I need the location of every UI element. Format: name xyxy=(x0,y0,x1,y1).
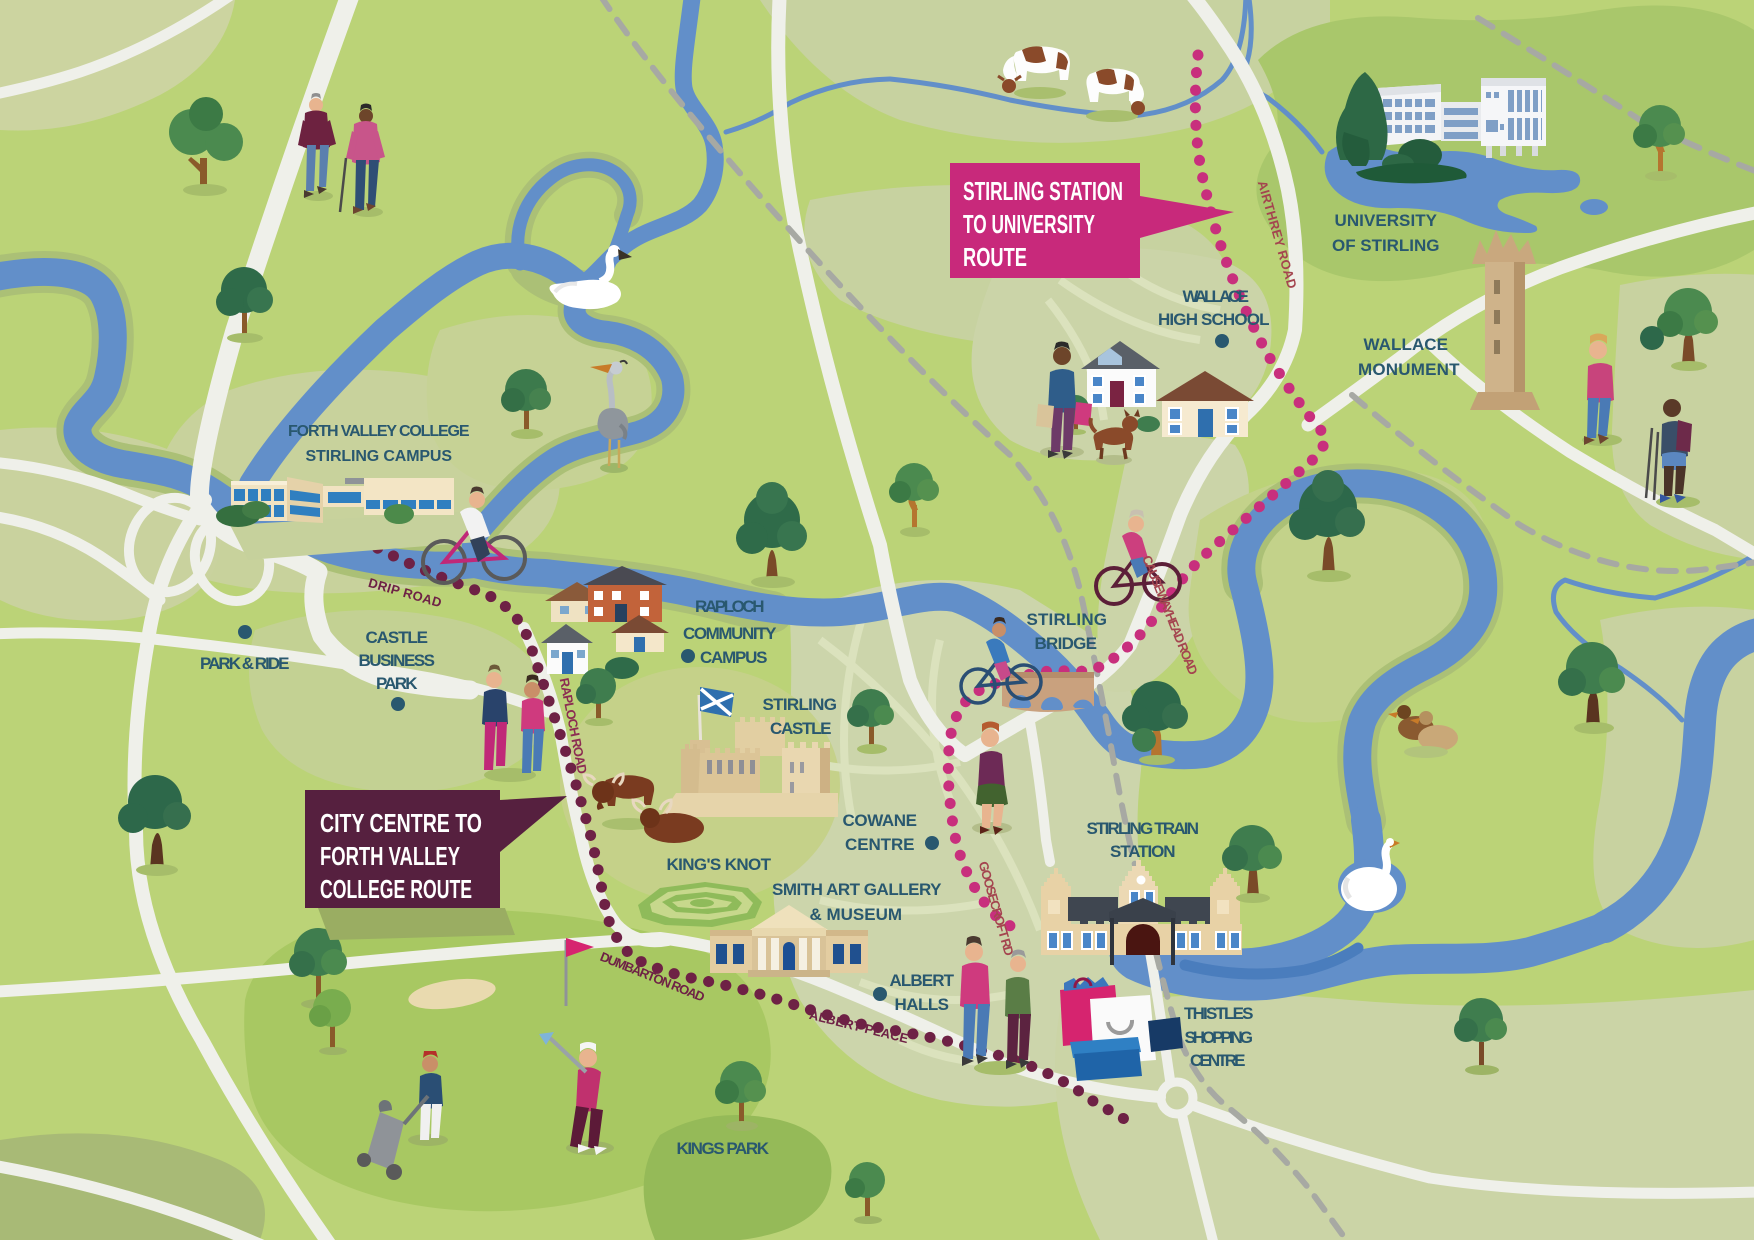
svg-text:PARK: PARK xyxy=(376,674,418,693)
svg-text:CENTRE: CENTRE xyxy=(845,835,915,854)
svg-text:UNIVERSITY: UNIVERSITY xyxy=(1335,211,1438,230)
svg-text:KINGS PARK: KINGS PARK xyxy=(677,1139,770,1158)
svg-text:CASTLE: CASTLE xyxy=(770,719,832,738)
svg-text:HALLS: HALLS xyxy=(895,995,950,1014)
svg-text:BRIDGE: BRIDGE xyxy=(1035,634,1098,653)
svg-text:SHOPPING: SHOPPING xyxy=(1185,1028,1254,1047)
svg-text:THISTLES: THISTLES xyxy=(1184,1004,1254,1023)
svg-text:TO UNIVERSITY: TO UNIVERSITY xyxy=(963,209,1095,239)
svg-text:ALBERT: ALBERT xyxy=(890,971,955,990)
svg-text:COMMUNITY: COMMUNITY xyxy=(683,624,777,643)
svg-text:CASTLE: CASTLE xyxy=(366,628,429,647)
svg-text:CENTRE: CENTRE xyxy=(1190,1051,1246,1070)
svg-text:SMITH ART GALLERY: SMITH ART GALLERY xyxy=(772,880,942,899)
svg-text:RAPLOCH: RAPLOCH xyxy=(695,597,765,616)
svg-text:STIRLING: STIRLING xyxy=(763,695,838,714)
svg-text:STIRLING CAMPUS: STIRLING CAMPUS xyxy=(306,448,453,465)
svg-text:CAMPUS: CAMPUS xyxy=(700,648,768,667)
svg-text:FORTH VALLEY COLLEGE: FORTH VALLEY COLLEGE xyxy=(288,423,470,440)
svg-text:KING'S KNOT: KING'S KNOT xyxy=(667,855,772,874)
svg-text:BUSINESS: BUSINESS xyxy=(359,651,436,670)
svg-text:STIRLING: STIRLING xyxy=(1027,610,1108,629)
svg-text:CITY CENTRE TO: CITY CENTRE TO xyxy=(320,808,482,838)
svg-text:STIRLING TRAIN: STIRLING TRAIN xyxy=(1087,819,1200,838)
svg-text:PARK & RIDE: PARK & RIDE xyxy=(200,654,290,673)
svg-text:COWANE: COWANE xyxy=(843,811,918,830)
svg-text:COLLEGE ROUTE: COLLEGE ROUTE xyxy=(320,874,472,904)
svg-text:HIGH SCHOOL: HIGH SCHOOL xyxy=(1158,310,1270,329)
svg-text:STATION: STATION xyxy=(1110,842,1176,861)
svg-text:& MUSEUM: & MUSEUM xyxy=(810,905,903,924)
svg-text:MONUMENT: MONUMENT xyxy=(1358,360,1460,379)
svg-text:WALLACE: WALLACE xyxy=(1183,287,1250,306)
svg-text:ROUTE: ROUTE xyxy=(963,242,1027,272)
svg-text:STIRLING STATION: STIRLING STATION xyxy=(963,176,1123,206)
svg-text:FORTH VALLEY: FORTH VALLEY xyxy=(320,841,460,871)
svg-text:WALLACE: WALLACE xyxy=(1364,335,1449,354)
svg-text:OF STIRLING: OF STIRLING xyxy=(1332,236,1440,255)
